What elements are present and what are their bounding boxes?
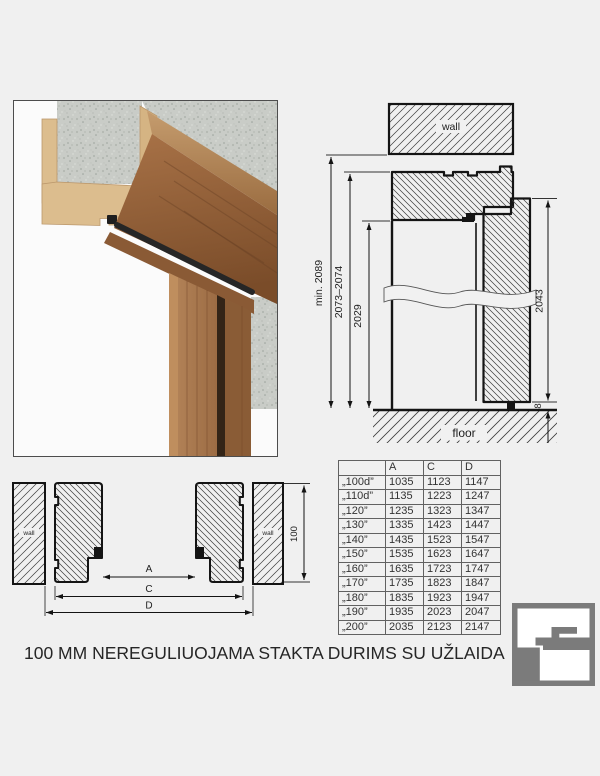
cell-c: 1123 [424,475,462,490]
cell-a: 1835 [386,591,424,606]
cell-d: 1847 [462,577,501,592]
wall-label: wall [441,121,460,133]
table-row: „190”193520232047 [339,606,501,621]
jamb-profile-left [55,483,102,582]
table-row: „130”133514231447 [339,519,501,534]
cell-c: 2023 [424,606,462,621]
cell-d: 1447 [462,519,501,534]
jamb-seal-right [197,547,204,557]
cell-d: 1247 [462,490,501,505]
frame-profile-logo-icon [512,603,595,686]
cell-size: „130” [339,519,386,534]
header-c: C [424,461,462,476]
cell-size: „120” [339,504,386,519]
jamb-seal-left [94,547,101,557]
cell-a: 1435 [386,533,424,548]
cell-d: 1147 [462,475,501,490]
header-d: D [462,461,501,476]
cell-d: 1547 [462,533,501,548]
dim-floor-gap: 8 [533,403,544,408]
horizontal-section-diagram: wall wall A C D 100 [5,475,330,630]
cell-c: 2123 [424,620,462,635]
floor-label: floor [452,426,475,440]
threshold-tab [507,402,515,410]
dim-min-height: min. 2089 [313,260,325,306]
dim-a-label: A [146,564,153,575]
cell-a: 1635 [386,562,424,577]
header-size [339,461,386,476]
wall-right-label: wall [261,530,274,537]
cell-c: 1223 [424,490,462,505]
cell-a: 1535 [386,548,424,563]
cell-d: 2147 [462,620,501,635]
table-row: „170”173518231847 [339,577,501,592]
header-a: A [386,461,424,476]
cell-d: 1747 [462,562,501,577]
dim-leaf-height: 2043 [534,289,546,313]
cell-a: 1735 [386,577,424,592]
table-header-row: A C D [339,461,501,476]
cell-c: 1823 [424,577,462,592]
dim-opening-height: 2029 [352,304,364,328]
table-row: „110d”113512231247 [339,490,501,505]
cell-d: 1647 [462,548,501,563]
cell-a: 1235 [386,504,424,519]
cell-c: 1923 [424,591,462,606]
cell-size: „190” [339,606,386,621]
cell-c: 1323 [424,504,462,519]
product-title: 100 MM NEREGULIUOJAMA STAKTA DURIMS SU U… [24,643,505,664]
frame-corner-photo [13,100,278,457]
table-row: „140”143515231547 [339,533,501,548]
cell-c: 1423 [424,519,462,534]
table-row: „150”153516231647 [339,548,501,563]
dim-d-label: D [145,601,152,612]
cell-size: „150” [339,548,386,563]
dim-frame-height: 2073–2074 [333,266,345,319]
wall-left-label: wall [22,530,35,537]
vertical-section-diagram: wall floor min. 2089 2073–2074 2029 [308,95,600,447]
cell-c: 1723 [424,562,462,577]
table-row: „200”203521232147 [339,620,501,635]
cell-a: 1035 [386,475,424,490]
dim-depth-label: 100 [289,526,300,542]
cell-size: „140” [339,533,386,548]
cell-size: „180” [339,591,386,606]
table-row: „180”183519231947 [339,591,501,606]
cell-a: 1335 [386,519,424,534]
table-row: „160”163517231747 [339,562,501,577]
cell-a: 1135 [386,490,424,505]
jamb-profile-right [196,483,243,582]
frame-head-profile [392,167,513,221]
table-row: „120”123513231347 [339,504,501,519]
size-table: A C D „100d”103511231147 „110d”113512231… [338,460,501,635]
table-row: „100d”103511231147 [339,475,501,490]
frame-corner-illustration [14,101,277,456]
cell-c: 1623 [424,548,462,563]
cell-size: „110d” [339,490,386,505]
cell-c: 1523 [424,533,462,548]
jamb-seal-groove [217,295,225,456]
cell-size: „170” [339,577,386,592]
cell-size: „100d” [339,475,386,490]
spec-sheet: wall floor min. 2089 2073–2074 2029 [0,0,600,776]
cell-d: 2047 [462,606,501,621]
cell-d: 1347 [462,504,501,519]
dim-c-label: C [145,584,152,595]
cell-size: „160” [339,562,386,577]
cell-d: 1947 [462,591,501,606]
cell-a: 2035 [386,620,424,635]
cell-a: 1935 [386,606,424,621]
cell-size: „200” [339,620,386,635]
